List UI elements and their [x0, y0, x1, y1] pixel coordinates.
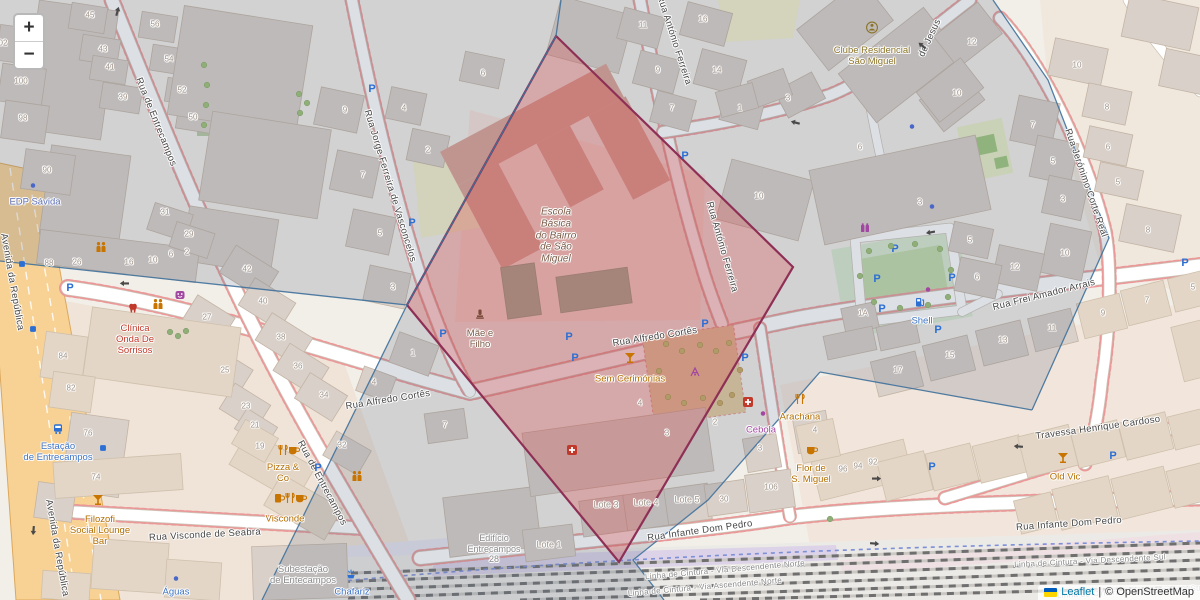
zoom-out-button[interactable]: −	[15, 42, 43, 68]
zoom-control: + −	[13, 13, 45, 70]
osm-attribution: © OpenStreetMap	[1105, 586, 1194, 598]
attribution-divider: |	[1098, 586, 1101, 598]
basemap	[0, 0, 1200, 600]
ukraine-flag-icon	[1044, 588, 1057, 597]
attribution-bar: Leaflet | © OpenStreetMap	[1038, 585, 1200, 600]
map-canvas[interactable]: Rua de EntrecamposRua de EntrecamposRua …	[0, 0, 1200, 600]
leaflet-link[interactable]: Leaflet	[1061, 586, 1094, 598]
zoom-in-button[interactable]: +	[15, 15, 43, 42]
